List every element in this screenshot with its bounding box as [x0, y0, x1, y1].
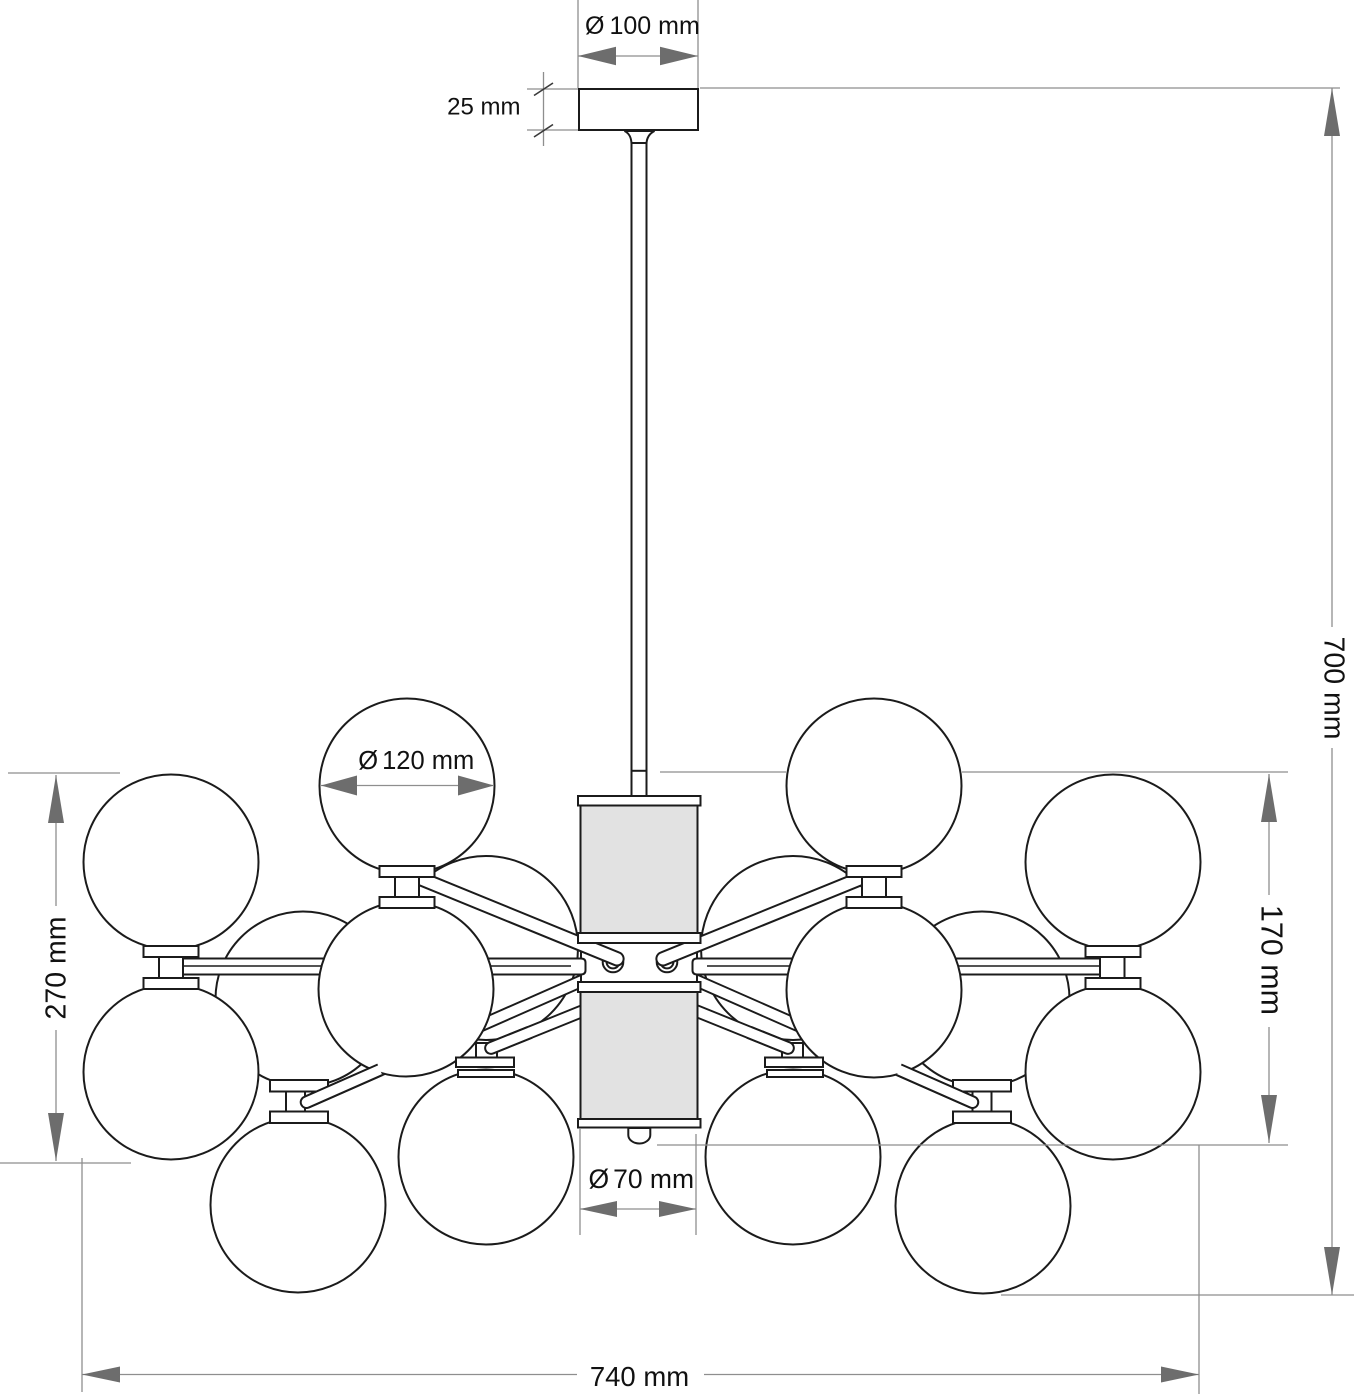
svg-text:170 mm: 170 mm — [1255, 905, 1289, 1015]
svg-text:Ø: Ø — [358, 747, 378, 775]
svg-text:740 mm: 740 mm — [590, 1361, 689, 1392]
svg-text:700 mm: 700 mm — [1318, 637, 1350, 740]
svg-text:70 mm: 70 mm — [613, 1164, 694, 1194]
svg-text:100 mm: 100 mm — [610, 12, 700, 40]
svg-text:120 mm: 120 mm — [382, 747, 474, 775]
svg-text:Ø: Ø — [589, 1164, 610, 1194]
svg-text:Ø: Ø — [585, 12, 604, 40]
svg-text:270 mm: 270 mm — [41, 917, 73, 1020]
svg-text:25 mm: 25 mm — [447, 94, 520, 121]
